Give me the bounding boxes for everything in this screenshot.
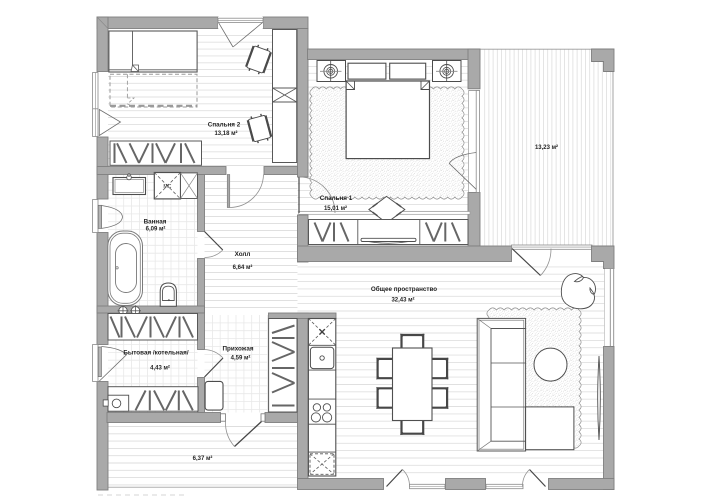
svg-text:Спальня 1: Спальня 1 xyxy=(320,195,353,202)
svg-text:6,64 м²: 6,64 м² xyxy=(233,264,253,271)
svg-text:32,43 м²: 32,43 м² xyxy=(391,297,414,304)
svg-text:Ванная: Ванная xyxy=(144,219,167,226)
svg-text:МС: МС xyxy=(163,184,171,190)
svg-text:13,18 м²: 13,18 м² xyxy=(214,130,237,137)
svg-text:Холл: Холл xyxy=(235,251,251,258)
svg-text:6,37 м²: 6,37 м² xyxy=(193,455,213,462)
svg-text:Общее пространство: Общее пространство xyxy=(371,285,437,293)
svg-text:13,23 м²: 13,23 м² xyxy=(535,144,558,151)
svg-text:Спальня 2: Спальня 2 xyxy=(208,122,241,129)
svg-text:6,09 м²: 6,09 м² xyxy=(146,226,166,233)
svg-text:4,59 м²: 4,59 м² xyxy=(231,355,251,362)
svg-text:Прихожая: Прихожая xyxy=(222,346,253,353)
svg-text:4,43 м²: 4,43 м² xyxy=(150,365,170,372)
svg-text:15,01 м²: 15,01 м² xyxy=(324,205,347,212)
svg-text:Бытовая /котельная/: Бытовая /котельная/ xyxy=(123,350,188,357)
